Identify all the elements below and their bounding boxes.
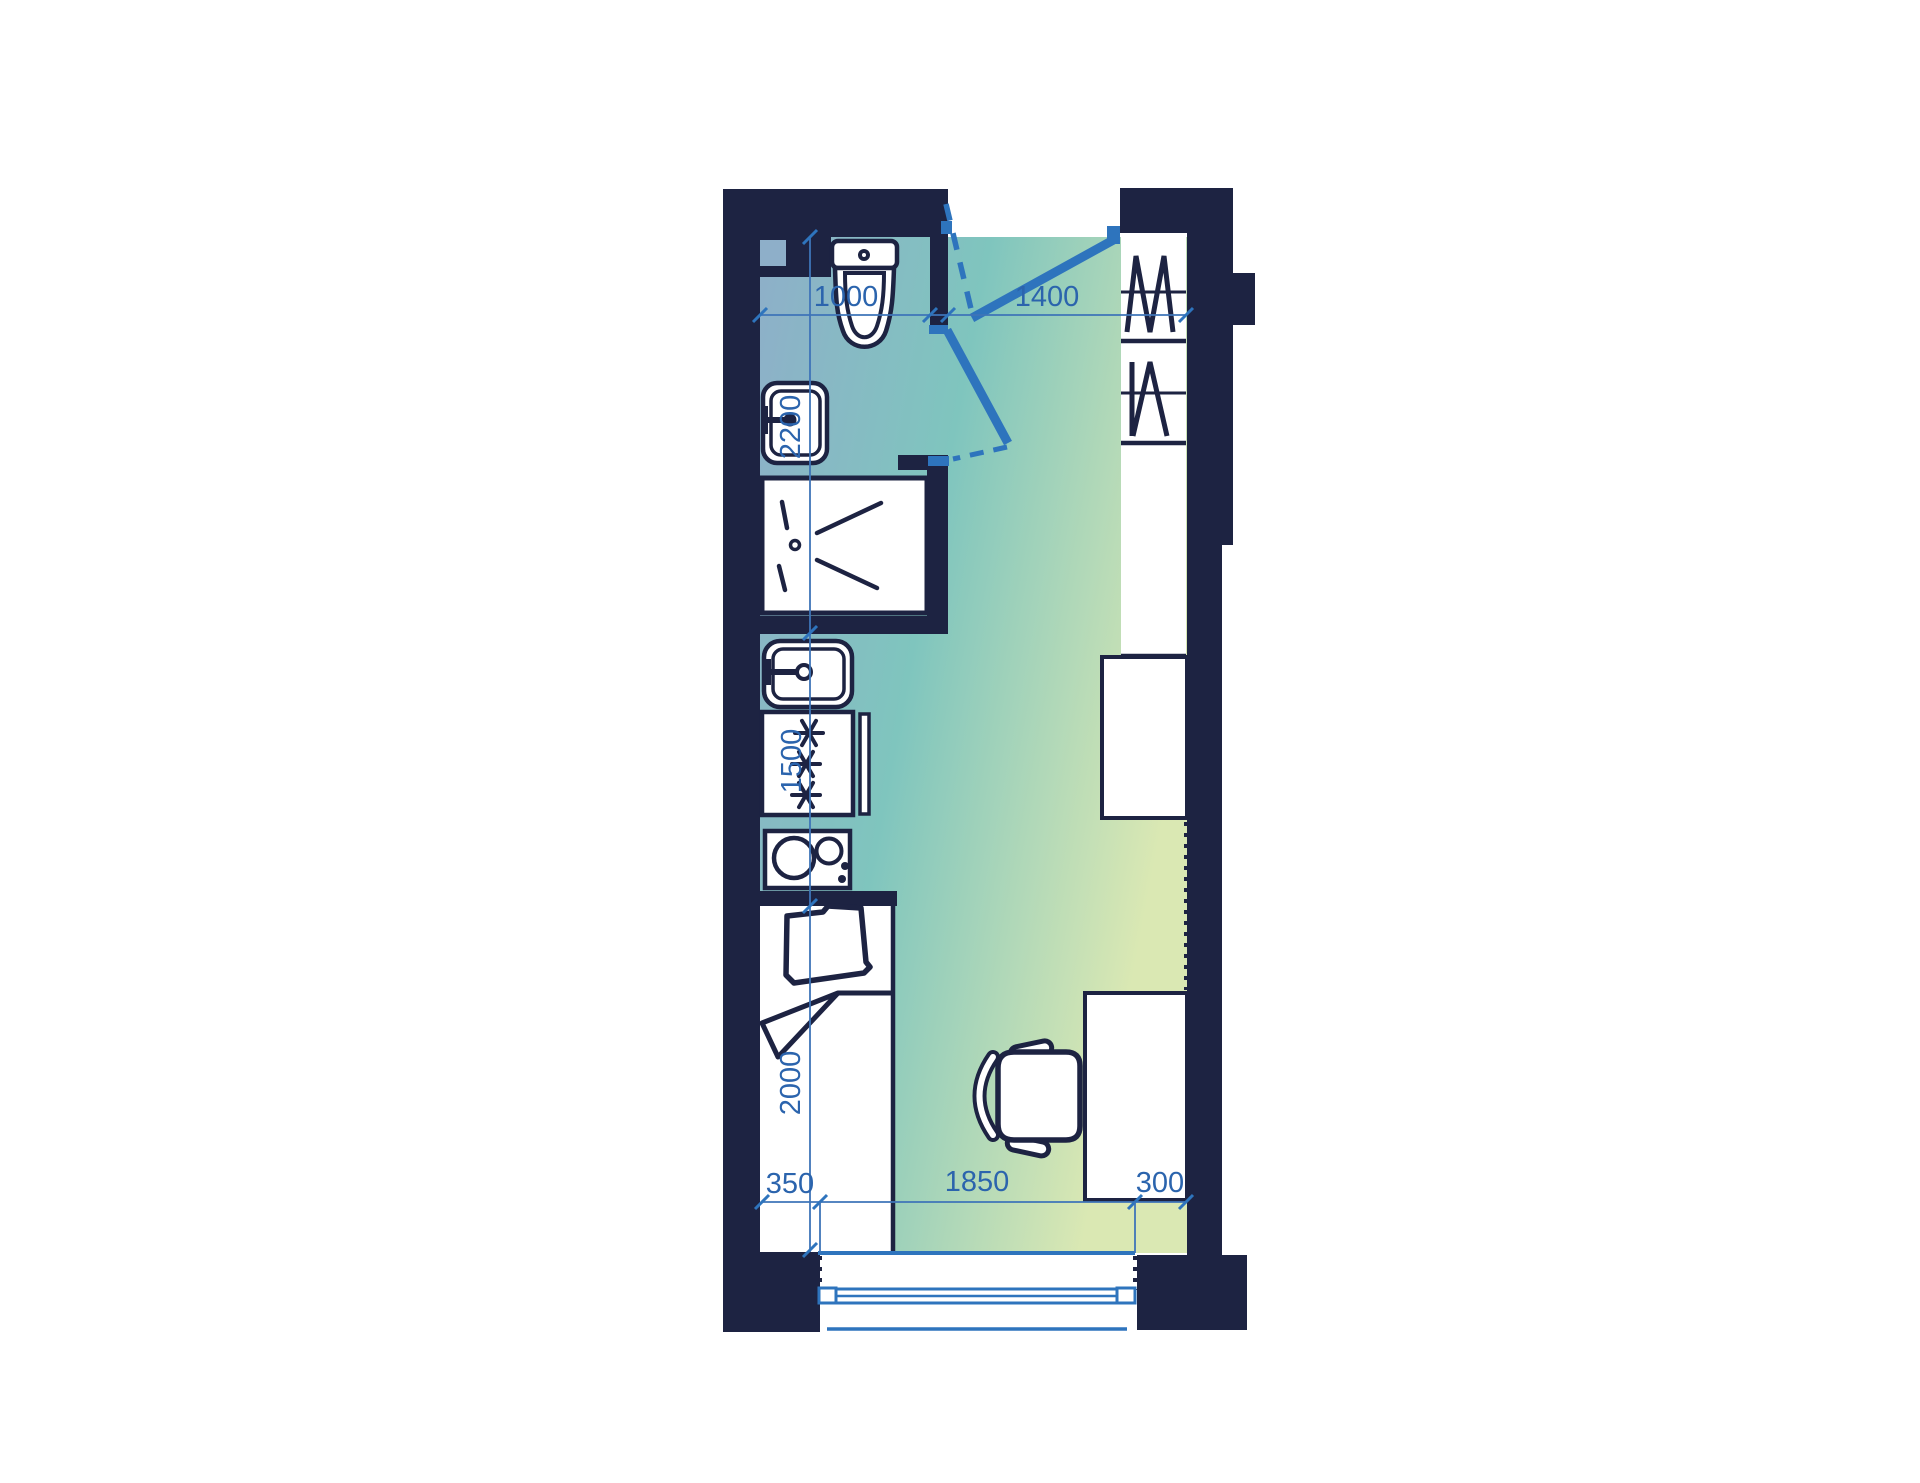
floor-plan-canvas: 1000 1400 2200 1500 2000 350 1850 300	[0, 0, 1920, 1483]
dim-desk-side-offset: 300	[1136, 1167, 1184, 1199]
dim-bathroom-width: 1000	[814, 281, 879, 313]
dim-bed-side-offset: 350	[766, 1168, 814, 1200]
counter	[1102, 657, 1187, 818]
dim-bed-length: 2000	[775, 1051, 807, 1116]
fridge-door	[860, 714, 869, 814]
dim-kitchen-run-length: 1500	[776, 729, 808, 794]
dim-window-span: 1850	[945, 1166, 1010, 1198]
dim-bathroom-length: 2200	[775, 395, 807, 460]
kitchen-sink	[764, 641, 852, 707]
shower	[762, 478, 927, 613]
window-sill	[827, 1303, 1127, 1329]
duct-niche	[760, 240, 786, 266]
pillow	[786, 906, 870, 983]
window-opening	[818, 1254, 1137, 1289]
cooktop	[765, 831, 850, 888]
floor-plan: 1000 1400 2200 1500 2000 350 1850 300	[0, 0, 1920, 1483]
dim-entry-zone-width: 1400	[1015, 281, 1080, 313]
